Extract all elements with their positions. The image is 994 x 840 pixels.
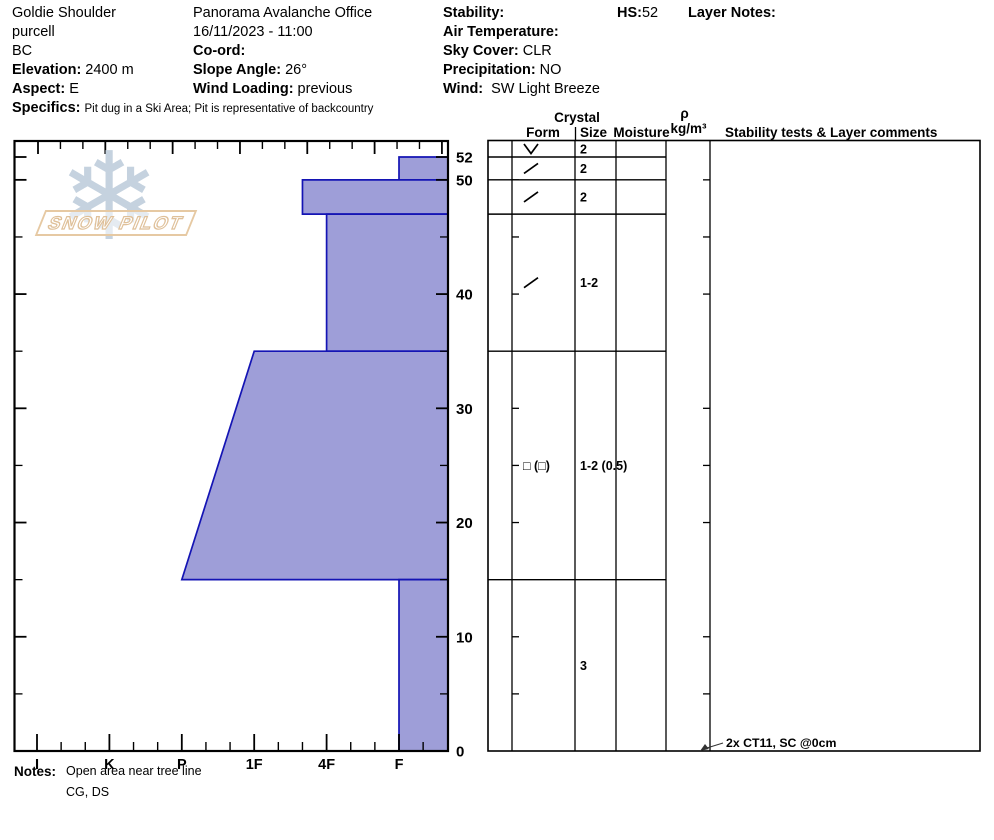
grain-table-frame — [488, 141, 980, 752]
grain-row: 3 — [580, 659, 587, 673]
size-header: Size — [580, 125, 608, 140]
snow-layer — [327, 214, 448, 351]
grain-size-value: 1-2 (0.5) — [580, 459, 627, 473]
height-tick-label: 10 — [456, 629, 473, 646]
grain-size-value: 2 — [580, 190, 587, 204]
height-tick-label: 0 — [456, 744, 464, 761]
stability-test-annotation: 2x CT11, SC @0cm — [700, 736, 836, 751]
faceted-crystals-icon: □ (□) — [523, 459, 550, 473]
snow-layer — [399, 580, 448, 751]
snowpilot-report: Goldie Shoulder purcell BC Elevation:240… — [0, 0, 994, 840]
hardness-tick-label: 1F — [246, 757, 263, 773]
temperature-axis — [38, 142, 442, 154]
snow-layer — [399, 157, 448, 180]
crystal-header: Crystal — [554, 110, 600, 125]
grain-row: 2 — [524, 162, 587, 176]
hardness-tick-label: 4F — [318, 757, 335, 773]
grain-row: 2 — [524, 190, 587, 204]
snow-layers — [182, 157, 448, 751]
notes-line1: Open area near tree line — [66, 764, 202, 778]
notes-body: Open area near tree line CG, DS — [66, 764, 202, 799]
annotation-arrow-icon — [700, 744, 709, 751]
grain-table-grid — [488, 127, 980, 751]
comments-header: Stability tests & Layer comments — [725, 125, 937, 140]
height-tick-label: 40 — [456, 287, 473, 304]
height-tick-label: 50 — [456, 172, 473, 189]
grain-table-headers: CrystalFormSizeMoistureρkg/m³Stability t… — [526, 106, 937, 140]
grain-row: 2 — [524, 143, 587, 157]
decomposing-fragments-icon — [524, 192, 538, 202]
snow-layer — [302, 180, 448, 214]
surface-hoar-icon — [524, 144, 538, 154]
grain-row: 1-2 — [524, 276, 598, 290]
grain-size-value: 2 — [580, 143, 587, 157]
notes-line2: CG, DS — [66, 785, 202, 799]
notes-section: Notes: Open area near tree line CG, DS — [14, 764, 202, 801]
density-unit-header: kg/m³ — [670, 121, 707, 136]
notes-label: Notes: — [14, 764, 56, 779]
form-header: Form — [526, 125, 560, 140]
decomposing-fragments-icon — [524, 278, 538, 288]
snow-layer — [182, 351, 448, 579]
height-tick-label: 52 — [456, 150, 473, 167]
height-tick-label: 30 — [456, 401, 473, 418]
grain-size-value: 1-2 — [580, 276, 598, 290]
stability-test-text: 2x CT11, SC @0cm — [726, 736, 836, 750]
density-rho-header: ρ — [680, 106, 688, 121]
grain-size-value: 3 — [580, 659, 587, 673]
hardness-tick-label: F — [395, 757, 404, 773]
grain-size-value: 2 — [580, 162, 587, 176]
snow-profile-chart: IKP1F4FF5250403020100CrystalFormSizeMois… — [0, 0, 994, 812]
moisture-header: Moisture — [613, 125, 670, 140]
height-tick-label: 20 — [456, 515, 473, 532]
decomposing-fragments-icon — [524, 163, 538, 173]
